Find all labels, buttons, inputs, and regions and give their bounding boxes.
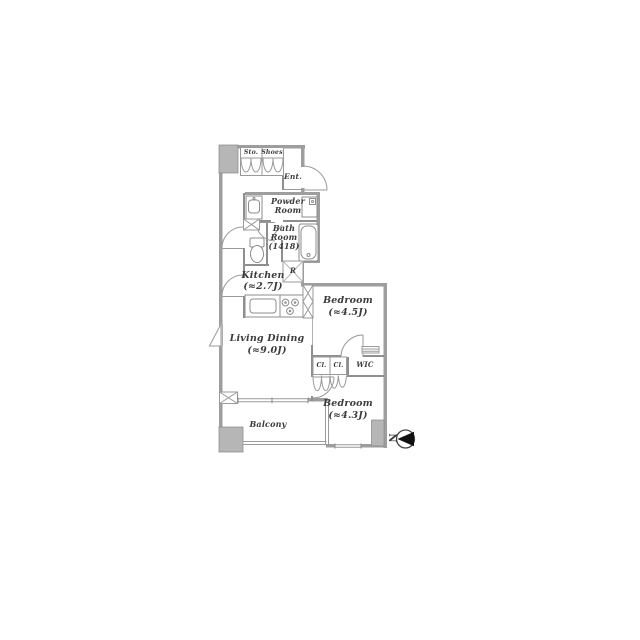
- living-balcony-window: [238, 398, 308, 404]
- living-left-window: [210, 324, 223, 346]
- label-wic: WIC: [356, 361, 373, 369]
- label-refrigerator: R: [290, 267, 296, 275]
- pillar-top-left: [219, 145, 238, 173]
- living-corner-duct: [220, 392, 238, 404]
- vanity-sink-icon: [246, 196, 262, 219]
- wic-door-arc: [341, 335, 363, 357]
- entrance-door-arc: [303, 166, 327, 190]
- toilet-door-arc: [222, 227, 243, 249]
- washer-pan-icon: [244, 219, 260, 230]
- compass-icon: [397, 430, 415, 448]
- label-entrance: Ent.: [284, 172, 302, 181]
- compass-north-letter: N: [385, 433, 397, 442]
- label-balcony: Balcony: [249, 420, 286, 430]
- pipe-space-duct: [303, 285, 313, 318]
- closet-folding-doors: [313, 376, 347, 391]
- label-storage: Sto.: [244, 149, 258, 156]
- label-shoes: Shoes: [261, 149, 283, 156]
- bedroom2-window: [335, 444, 361, 449]
- label-closet1: Cl.: [316, 362, 326, 369]
- kitchen-sink-icon: [250, 299, 276, 313]
- kitchen-counter: [245, 295, 303, 317]
- hall-door-arc: [222, 275, 243, 297]
- label-closet2: Cl.: [333, 362, 343, 369]
- pillar-bottom-left: [219, 427, 243, 452]
- bathtub-icon: [299, 224, 318, 261]
- floorplan-page: Sto. Shoes Ent. Powder Room Bath Room (1…: [0, 0, 640, 640]
- wic-small-window: [362, 347, 379, 354]
- floorplan-drawing: [0, 0, 640, 640]
- toilet-icon: [250, 238, 264, 263]
- pillar-bedroom-corner: [372, 420, 385, 446]
